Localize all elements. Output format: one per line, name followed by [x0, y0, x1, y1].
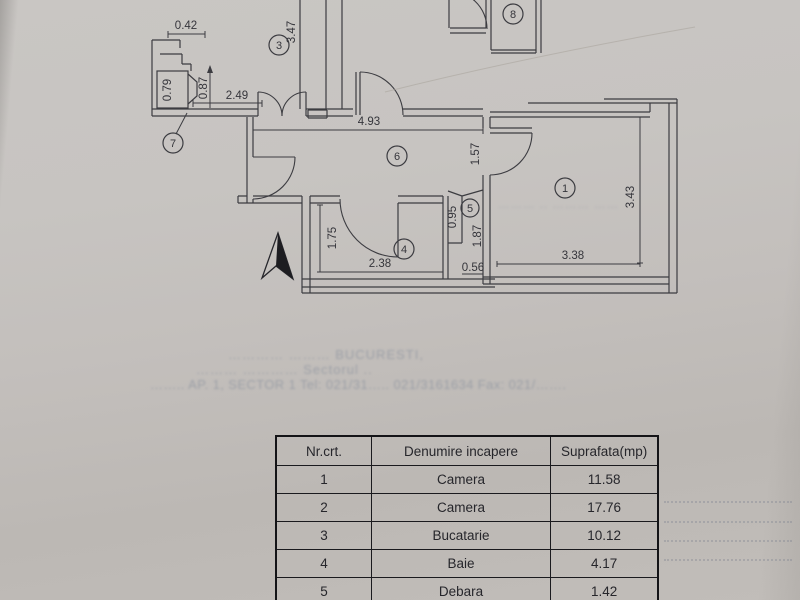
bleed-through-dots	[664, 501, 792, 503]
dim-042: 0.42	[175, 20, 197, 32]
door-arc-double-right	[282, 92, 306, 116]
svg-text:6: 6	[394, 151, 400, 163]
interior-walls	[238, 0, 677, 293]
floor-plan-drawing: 0.42 3.47 0.79 0.87 2.49 4.93 1.57 3.43 …	[0, 0, 800, 430]
cell-denumire: Debara	[372, 578, 551, 600]
bleed-through-dots	[664, 521, 792, 523]
stamp-line-2: ……… ………… Sectorul ..	[196, 362, 373, 377]
cell-nr: 1	[276, 466, 372, 494]
table-row: 1 Camera 11.58	[276, 466, 658, 494]
closet-slant	[188, 74, 197, 104]
cell-denumire: Camera	[372, 494, 551, 522]
dim-079: 0.79	[162, 79, 174, 101]
bleed-through-dots	[664, 559, 792, 561]
dim-338: 3.38	[562, 250, 584, 262]
cell-denumire: Bucatarie	[372, 522, 551, 550]
svg-text:3: 3	[276, 40, 282, 52]
header-nr-crt: Nr.crt.	[276, 436, 372, 466]
door-arc-room4	[340, 199, 398, 257]
dim-095: 0.95	[447, 206, 459, 228]
dim-493: 4.93	[358, 116, 380, 128]
dimension-lines	[168, 31, 643, 275]
room-number-8: 8	[503, 4, 523, 24]
svg-text:5: 5	[467, 203, 473, 215]
stamp-line-1: ………… ……… BUCURESTI,	[228, 347, 424, 362]
cell-suprafata: 4.17	[551, 550, 659, 578]
room-number-4: 4	[394, 239, 414, 259]
room-number-5: 5	[461, 199, 479, 217]
dim-arrowhead	[207, 65, 213, 73]
cell-nr: 2	[276, 494, 372, 522]
table-row: 5 Debara 1.42	[276, 578, 658, 600]
door-arc-room1	[490, 133, 532, 175]
door-arc-hall-left	[253, 157, 295, 199]
room-number-3: 3	[269, 35, 289, 55]
cell-denumire: Camera	[372, 466, 551, 494]
dim-175: 1.75	[327, 227, 339, 249]
scanned-floor-plan-page: 0.42 3.47 0.79 0.87 2.49 4.93 1.57 3.43 …	[0, 0, 800, 600]
table-row: 2 Camera 17.76	[276, 494, 658, 522]
dim-056: 0.56	[462, 262, 484, 274]
dim-249: 2.49	[226, 90, 248, 102]
table-row: 3 Bucatarie 10.12	[276, 522, 658, 550]
svg-text:1: 1	[562, 183, 568, 195]
cell-suprafata: 10.12	[551, 522, 659, 550]
room-number-6: 6	[387, 146, 407, 166]
cell-suprafata: 17.76	[551, 494, 659, 522]
cell-suprafata: 1.42	[551, 578, 659, 600]
svg-text:7: 7	[170, 138, 176, 150]
table-header-row: Nr.crt. Denumire incapere Suprafata(mp)	[276, 436, 658, 466]
crease-line	[385, 27, 695, 92]
room-areas-table: Nr.crt. Denumire incapere Suprafata(mp) …	[275, 435, 659, 600]
svg-text:4: 4	[401, 244, 407, 256]
cell-nr: 5	[276, 578, 372, 600]
stamp-line-3: …….. AP. 1, SECTOR 1 Tel: 021/31….. 021/…	[150, 377, 566, 392]
dim-087: 0.87	[198, 77, 210, 99]
header-suprafata: Suprafata(mp)	[551, 436, 659, 466]
header-denumire: Denumire incapere	[372, 436, 551, 466]
cell-nr: 4	[276, 550, 372, 578]
table-row: 4 Baie 4.17	[276, 550, 658, 578]
svg-text:8: 8	[510, 9, 516, 21]
bleed-through-dots	[664, 540, 792, 542]
cell-denumire: Baie	[372, 550, 551, 578]
room-number-1: 1	[555, 178, 575, 198]
room-number-7: 7	[163, 133, 183, 153]
stamp-room1-note: ……… .. ……… ……	[498, 199, 693, 211]
cell-nr: 3	[276, 522, 372, 550]
dim-157: 1.57	[470, 143, 482, 165]
north-arrow	[262, 233, 293, 279]
door-arc-hall-to-top	[360, 72, 403, 115]
cell-suprafata: 11.58	[551, 466, 659, 494]
dim-238: 2.38	[369, 258, 391, 270]
door-arc-room8	[446, 0, 487, 29]
dim-187: 1.87	[472, 225, 484, 247]
